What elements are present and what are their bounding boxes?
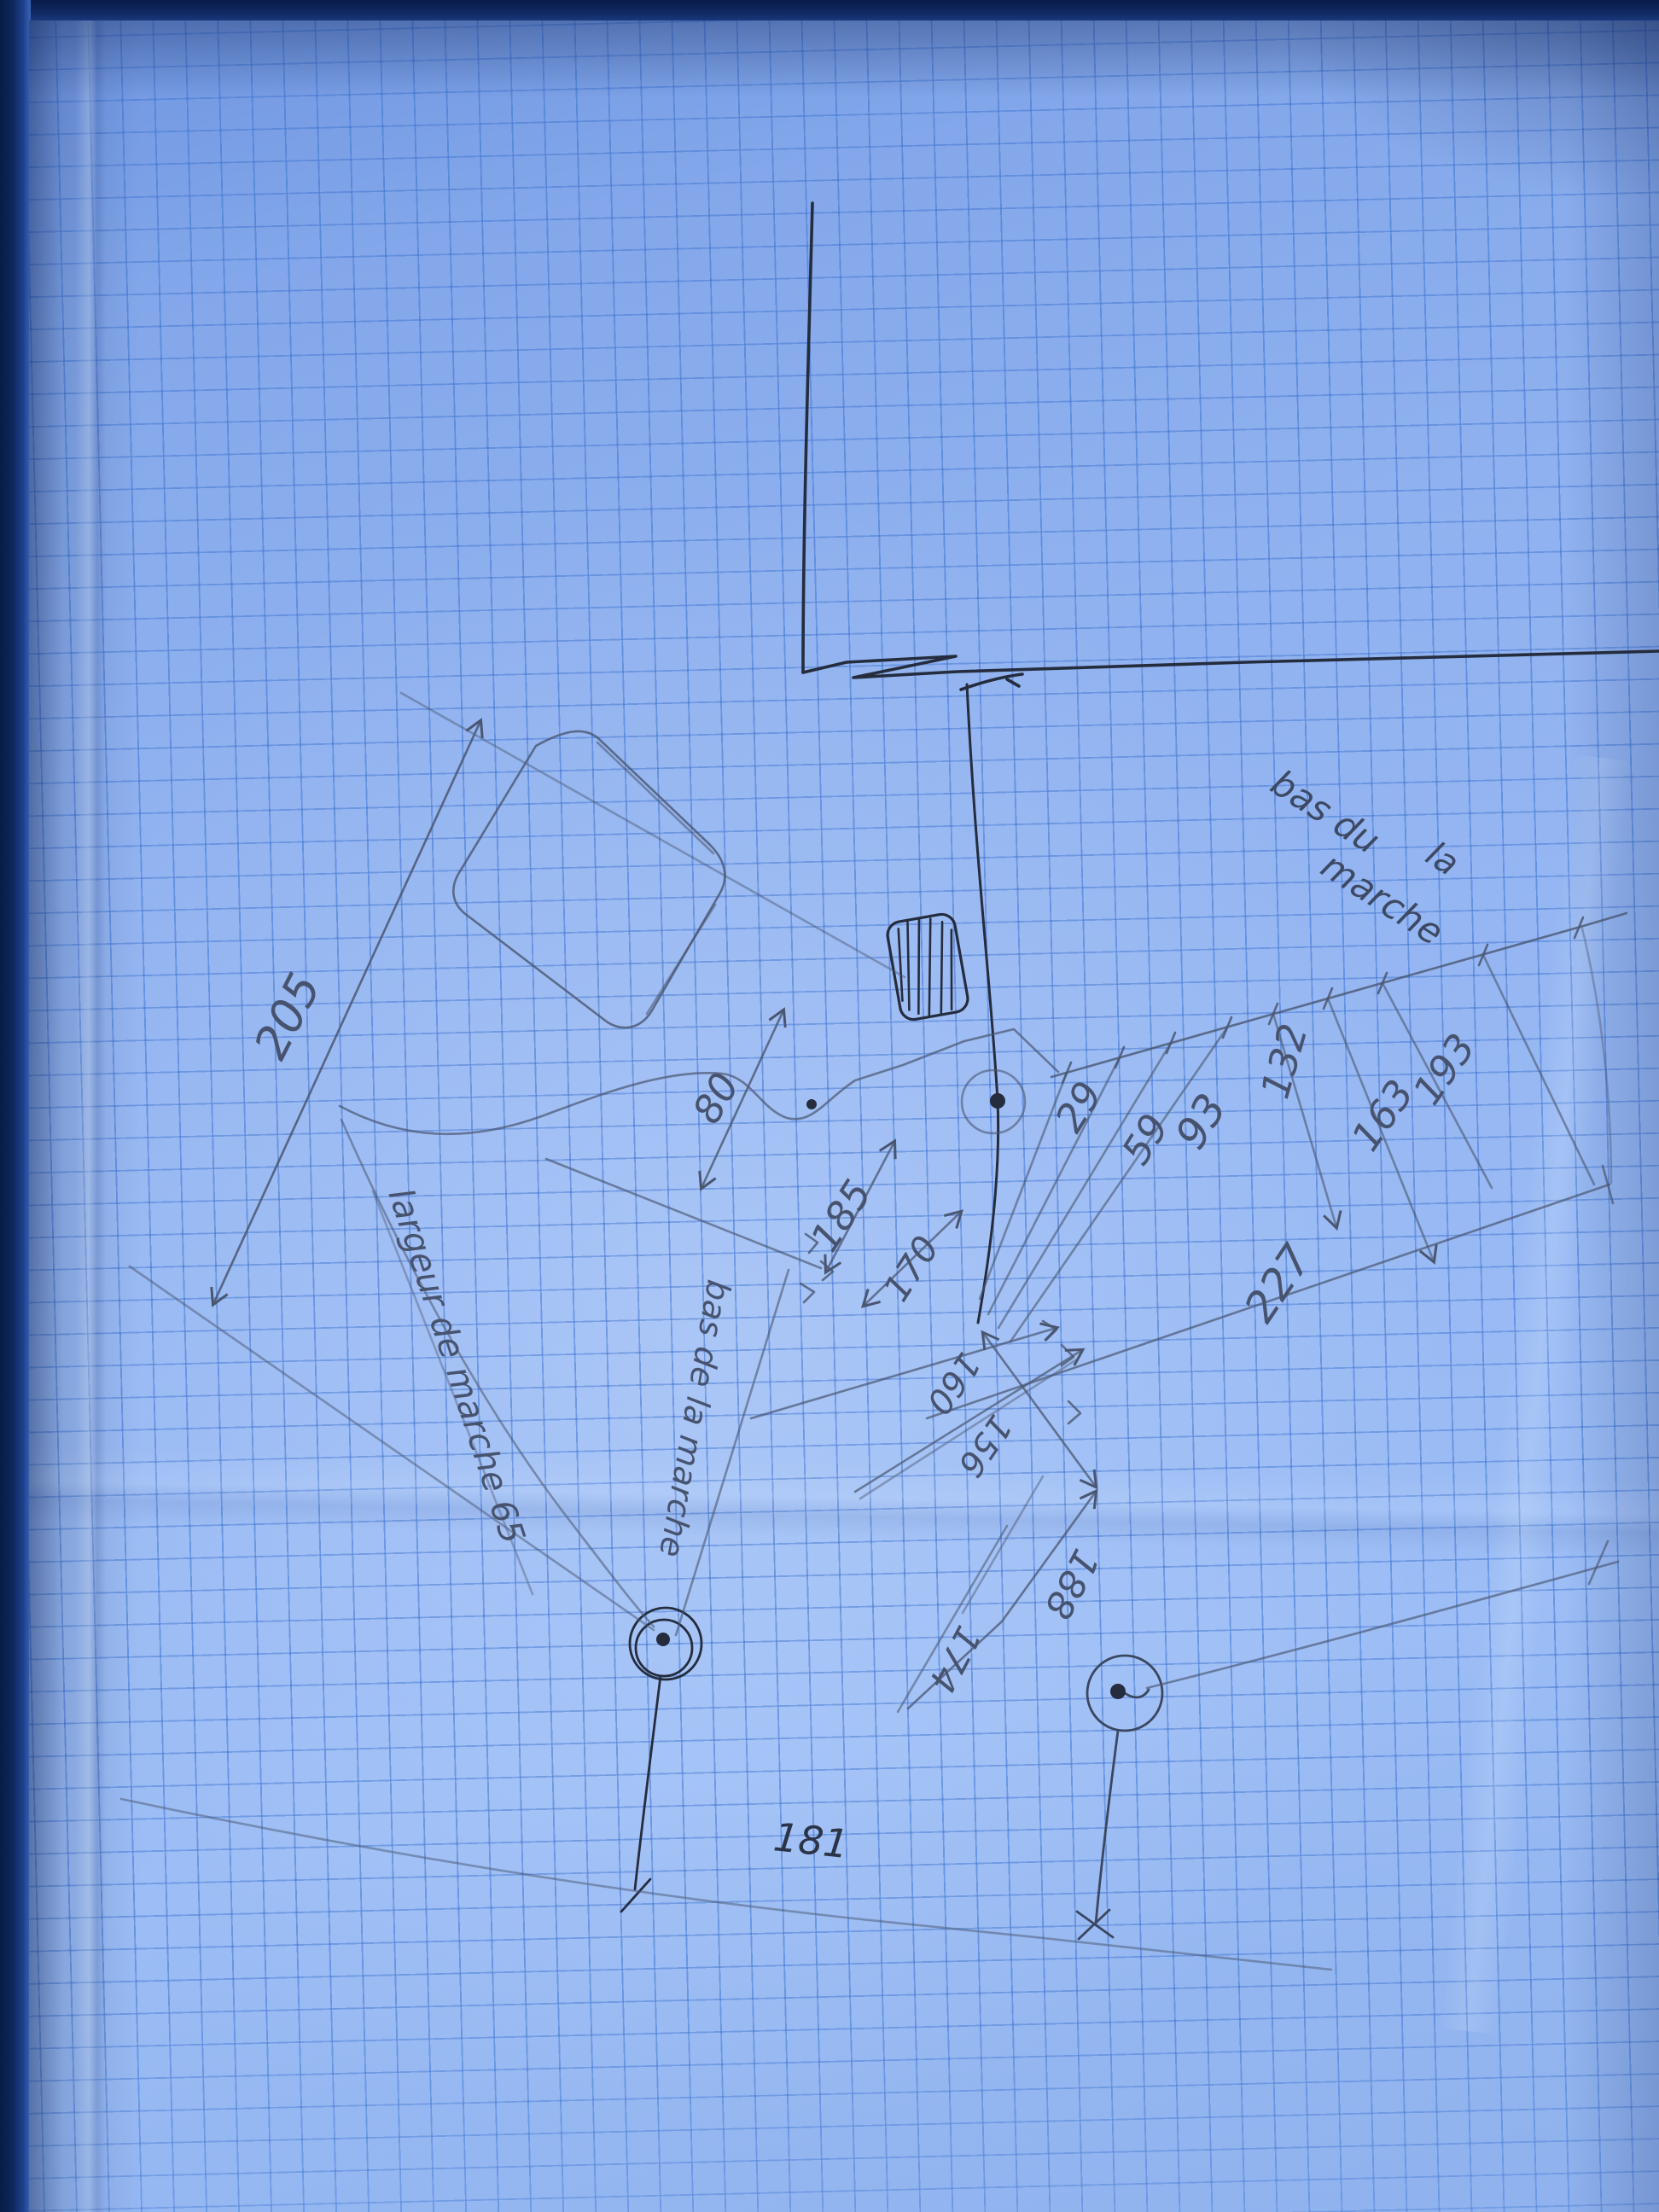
dim-label-156: 156 [950, 1407, 1019, 1483]
pulley-circle-left [621, 1608, 701, 1912]
fan-lines-to-vertex [980, 1027, 1227, 1342]
bottom-wavy-line [121, 1799, 1331, 1970]
hatched-box [886, 912, 970, 1022]
photo-background: 205 80 185 170 29 59 93 132 163 193 227 … [0, 0, 1659, 2212]
dim-label-181: 181 [771, 1813, 851, 1867]
dim-label-188: 188 [1035, 1542, 1107, 1626]
pen-hook-line [961, 674, 1022, 690]
dim-label-80: 80 [684, 1065, 748, 1132]
pen-zigzag-horizontal-line [803, 651, 1659, 678]
dim-label-132: 132 [1252, 1019, 1317, 1103]
object-rectangle-sketch [453, 731, 725, 1027]
right-circle-line-tick [1589, 1541, 1608, 1584]
center-dot-middle [990, 1093, 1005, 1109]
pencil-strokes [121, 693, 1627, 1970]
dim-label-29: 29 [1046, 1074, 1112, 1140]
small-dot [806, 1099, 817, 1109]
pen-vertical-line [803, 203, 812, 672]
pen-long-vertical-line [967, 684, 998, 1323]
right-circle-line [1147, 1562, 1618, 1688]
dim-label-227: 227 [1235, 1236, 1322, 1331]
chain-dimension-line [1051, 913, 1627, 1077]
note-bas-du: bas du [1264, 761, 1388, 862]
sketch-strokes: 205 80 185 170 29 59 93 132 163 193 227 … [0, 0, 1659, 2212]
long-diagonal-line [401, 693, 905, 977]
dim-label-59: 59 [1113, 1106, 1179, 1173]
parallel-short-line [963, 1476, 1043, 1613]
handwritten-labels: 205 80 185 170 29 59 93 132 163 193 227 … [243, 761, 1484, 1867]
dim-label-160: 160 [918, 1345, 987, 1421]
line-185 [546, 1159, 821, 1268]
dim-label-170: 170 [875, 1229, 947, 1309]
pen-strokes [621, 203, 1659, 1939]
dim-label-93: 93 [1166, 1086, 1237, 1158]
dimension-line-205 [213, 721, 480, 1304]
center-dot-right [1110, 1684, 1126, 1699]
center-dot-left [656, 1633, 670, 1646]
left-long-line [130, 1266, 654, 1630]
dim-label-205: 205 [243, 964, 331, 1067]
arrow-160 [751, 1328, 1057, 1418]
note-bas-de-la-marche: bas de la marche [652, 1277, 737, 1560]
right-faint-arc [1582, 928, 1611, 1183]
note-la: la [1419, 835, 1466, 884]
